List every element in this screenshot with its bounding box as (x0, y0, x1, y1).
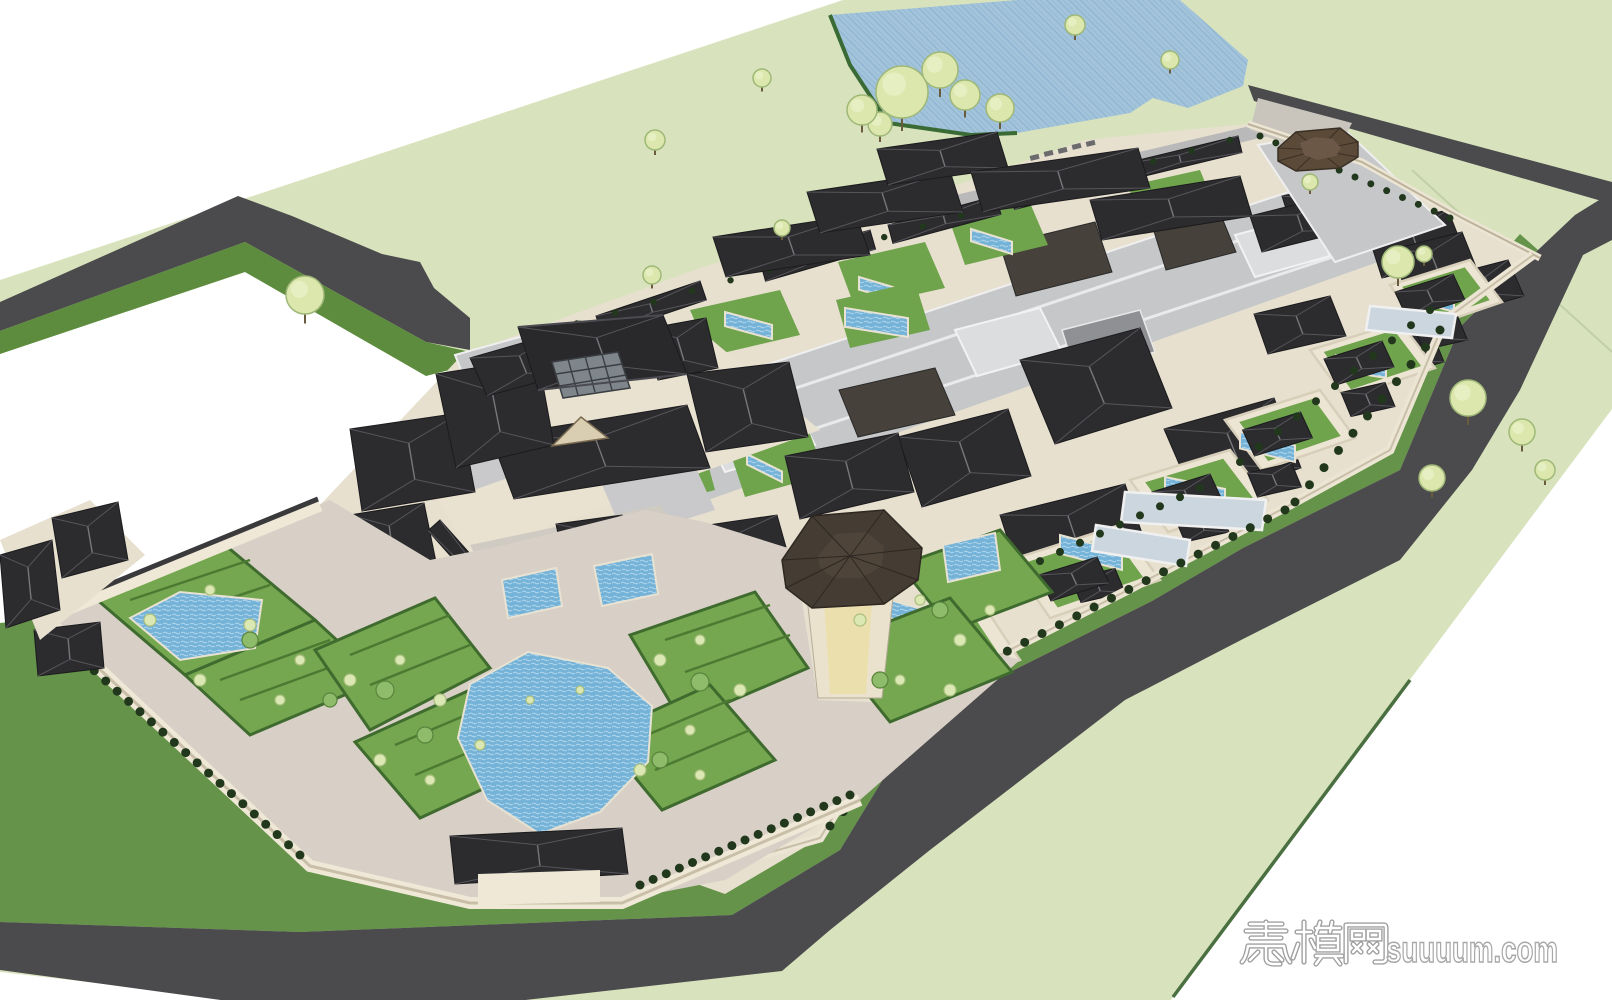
svg-text:suuuum.com: suuuum.com (1386, 929, 1558, 970)
